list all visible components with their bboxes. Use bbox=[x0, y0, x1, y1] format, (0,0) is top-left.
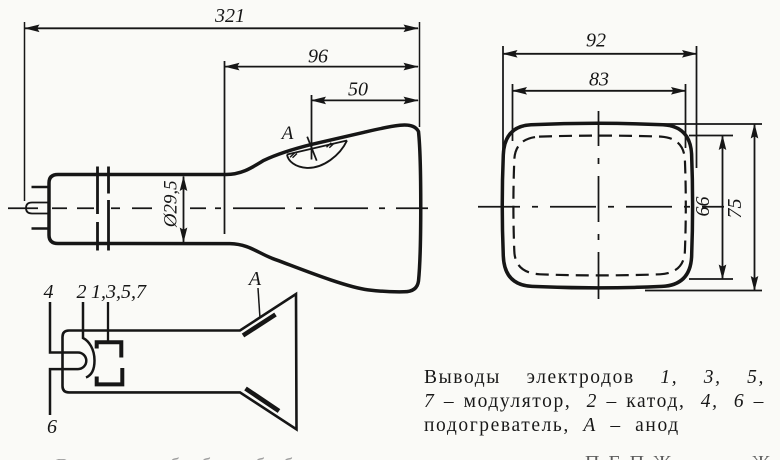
svg-text:A: A bbox=[280, 123, 294, 144]
svg-text:92: 92 bbox=[586, 30, 606, 52]
svg-text:4: 4 bbox=[44, 281, 54, 303]
svg-text:83: 83 bbox=[589, 69, 609, 91]
svg-text:96: 96 bbox=[308, 46, 328, 68]
svg-text:321: 321 bbox=[214, 5, 245, 27]
svg-text:6: 6 bbox=[47, 416, 57, 438]
svg-text:Ø29,5: Ø29,5 bbox=[161, 180, 182, 228]
svg-text:A: A bbox=[247, 268, 262, 290]
svg-text:2: 2 bbox=[77, 281, 87, 303]
svg-text:1,3,5,7: 1,3,5,7 bbox=[91, 281, 147, 303]
svg-text:75: 75 bbox=[724, 199, 746, 219]
svg-text:66: 66 bbox=[692, 197, 714, 217]
svg-text:50: 50 bbox=[348, 79, 368, 101]
